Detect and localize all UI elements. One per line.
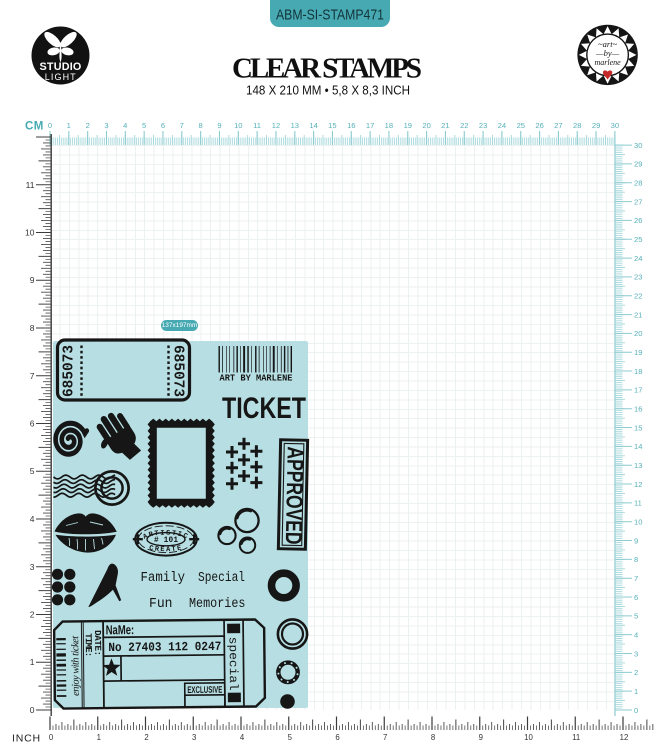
svg-text:14: 14 (634, 442, 642, 451)
svg-text:CLEAR STAMPS: CLEAR STAMPS (232, 52, 422, 84)
svg-text:14: 14 (309, 121, 317, 130)
svg-text:1: 1 (634, 687, 638, 696)
svg-text:TICKET: TICKET (222, 392, 306, 425)
svg-text:10: 10 (634, 518, 642, 527)
svg-text:19: 19 (404, 121, 412, 130)
svg-text:8: 8 (431, 733, 435, 742)
svg-text:24: 24 (498, 121, 506, 130)
svg-text:2: 2 (30, 610, 35, 620)
svg-text:4: 4 (240, 733, 245, 742)
svg-text:1: 1 (67, 121, 71, 130)
svg-text:17: 17 (634, 386, 642, 395)
svg-text:7: 7 (180, 121, 184, 130)
svg-text:9: 9 (30, 275, 35, 285)
svg-text:7: 7 (634, 574, 638, 583)
svg-text:Fun: Fun (149, 597, 173, 612)
svg-text:11: 11 (634, 499, 642, 508)
svg-text:11: 11 (572, 733, 580, 742)
svg-text:NaMe:: NaMe: (106, 622, 135, 637)
svg-text:15: 15 (634, 423, 642, 432)
svg-text:5: 5 (634, 612, 638, 621)
svg-text:Family: Family (141, 571, 186, 586)
svg-text:ART BY MARLENE: ART BY MARLENE (220, 374, 293, 384)
svg-text:11: 11 (253, 121, 261, 130)
svg-text:7: 7 (383, 733, 387, 742)
svg-text:6: 6 (30, 419, 35, 429)
svg-text:7: 7 (30, 371, 35, 381)
svg-text:2: 2 (634, 668, 638, 677)
svg-text:enjoy with ticket: enjoy with ticket (70, 635, 82, 696)
svg-text:5: 5 (30, 466, 35, 476)
svg-text:29: 29 (634, 160, 642, 169)
svg-text:10: 10 (25, 228, 35, 238)
svg-text:18: 18 (634, 367, 642, 376)
svg-text:27: 27 (554, 121, 562, 130)
svg-text:Special: Special (198, 571, 245, 586)
svg-text:12: 12 (634, 480, 642, 489)
svg-text:9: 9 (479, 733, 483, 742)
svg-text:685073: 685073 (62, 345, 78, 397)
svg-text:6: 6 (335, 733, 339, 742)
svg-text:148 X 210 MM • 5,8 X 8,3 INCH: 148 X 210 MM • 5,8 X 8,3 INCH (246, 83, 410, 98)
svg-text:21: 21 (634, 310, 642, 319)
svg-text:27: 27 (634, 197, 642, 206)
svg-text:26: 26 (634, 216, 642, 225)
svg-text:25: 25 (634, 235, 642, 244)
svg-text:4: 4 (30, 514, 35, 524)
svg-text:6: 6 (161, 121, 165, 130)
svg-text:3: 3 (634, 649, 638, 658)
svg-text:20: 20 (634, 329, 642, 338)
svg-text:LIGHT: LIGHT (45, 72, 77, 82)
svg-text:16: 16 (634, 405, 642, 414)
svg-text:9: 9 (217, 121, 221, 130)
svg-text:0: 0 (49, 733, 54, 742)
svg-text:10: 10 (524, 733, 533, 742)
svg-text:2: 2 (86, 121, 90, 130)
svg-text:4: 4 (634, 631, 638, 640)
svg-text:# 101: # 101 (154, 537, 178, 545)
svg-text:4: 4 (123, 121, 127, 130)
svg-text:13: 13 (291, 121, 299, 130)
svg-text:685073: 685073 (170, 345, 186, 397)
svg-text:marlene: marlene (594, 58, 621, 67)
svg-text:No 27403 112 0247: No 27403 112 0247 (108, 640, 221, 655)
svg-text:3: 3 (192, 733, 196, 742)
svg-text:30: 30 (634, 141, 642, 150)
svg-text:9: 9 (634, 536, 638, 545)
svg-text:APPROVED: APPROVED (281, 446, 309, 545)
svg-text:special: special (226, 637, 241, 691)
svg-text:23: 23 (479, 121, 487, 130)
svg-text:17: 17 (366, 121, 374, 130)
svg-text:25: 25 (517, 121, 525, 130)
svg-text:11: 11 (26, 180, 35, 190)
svg-text:16: 16 (347, 121, 355, 130)
svg-text:3: 3 (30, 562, 35, 572)
svg-text:20: 20 (422, 121, 430, 130)
svg-text:12: 12 (272, 121, 280, 130)
svg-text:21: 21 (441, 121, 449, 130)
svg-text:13: 13 (634, 461, 642, 470)
svg-text:28: 28 (634, 179, 642, 188)
svg-text:5: 5 (142, 121, 146, 130)
svg-text:ABM-SI-STAMP471: ABM-SI-STAMP471 (276, 7, 384, 24)
svg-text:EXCLUSIVE: EXCLUSIVE (187, 685, 222, 696)
svg-text:INCH: INCH (12, 733, 41, 745)
svg-text:8: 8 (30, 323, 35, 333)
svg-text:Memories: Memories (189, 597, 246, 612)
svg-text:1: 1 (30, 657, 35, 667)
svg-text:19: 19 (634, 348, 642, 357)
svg-text:23: 23 (634, 273, 642, 282)
svg-text:0: 0 (634, 706, 638, 715)
svg-text:2: 2 (144, 733, 148, 742)
svg-text:1: 1 (97, 733, 101, 742)
svg-text:15: 15 (328, 121, 336, 130)
svg-text:22: 22 (634, 292, 642, 301)
svg-text:6: 6 (634, 593, 638, 602)
svg-text:8: 8 (634, 555, 638, 564)
svg-text:26: 26 (535, 121, 543, 130)
svg-text:5: 5 (288, 733, 293, 742)
svg-text:28: 28 (573, 121, 581, 130)
svg-text:8: 8 (198, 121, 202, 130)
svg-text:18: 18 (385, 121, 393, 130)
svg-text:TIME:: TIME: (83, 633, 94, 657)
svg-text:22: 22 (460, 121, 468, 130)
svg-text:—by—: —by— (595, 48, 620, 58)
svg-text:10: 10 (234, 121, 242, 130)
svg-text:3: 3 (104, 121, 108, 130)
svg-text:24: 24 (634, 254, 642, 263)
